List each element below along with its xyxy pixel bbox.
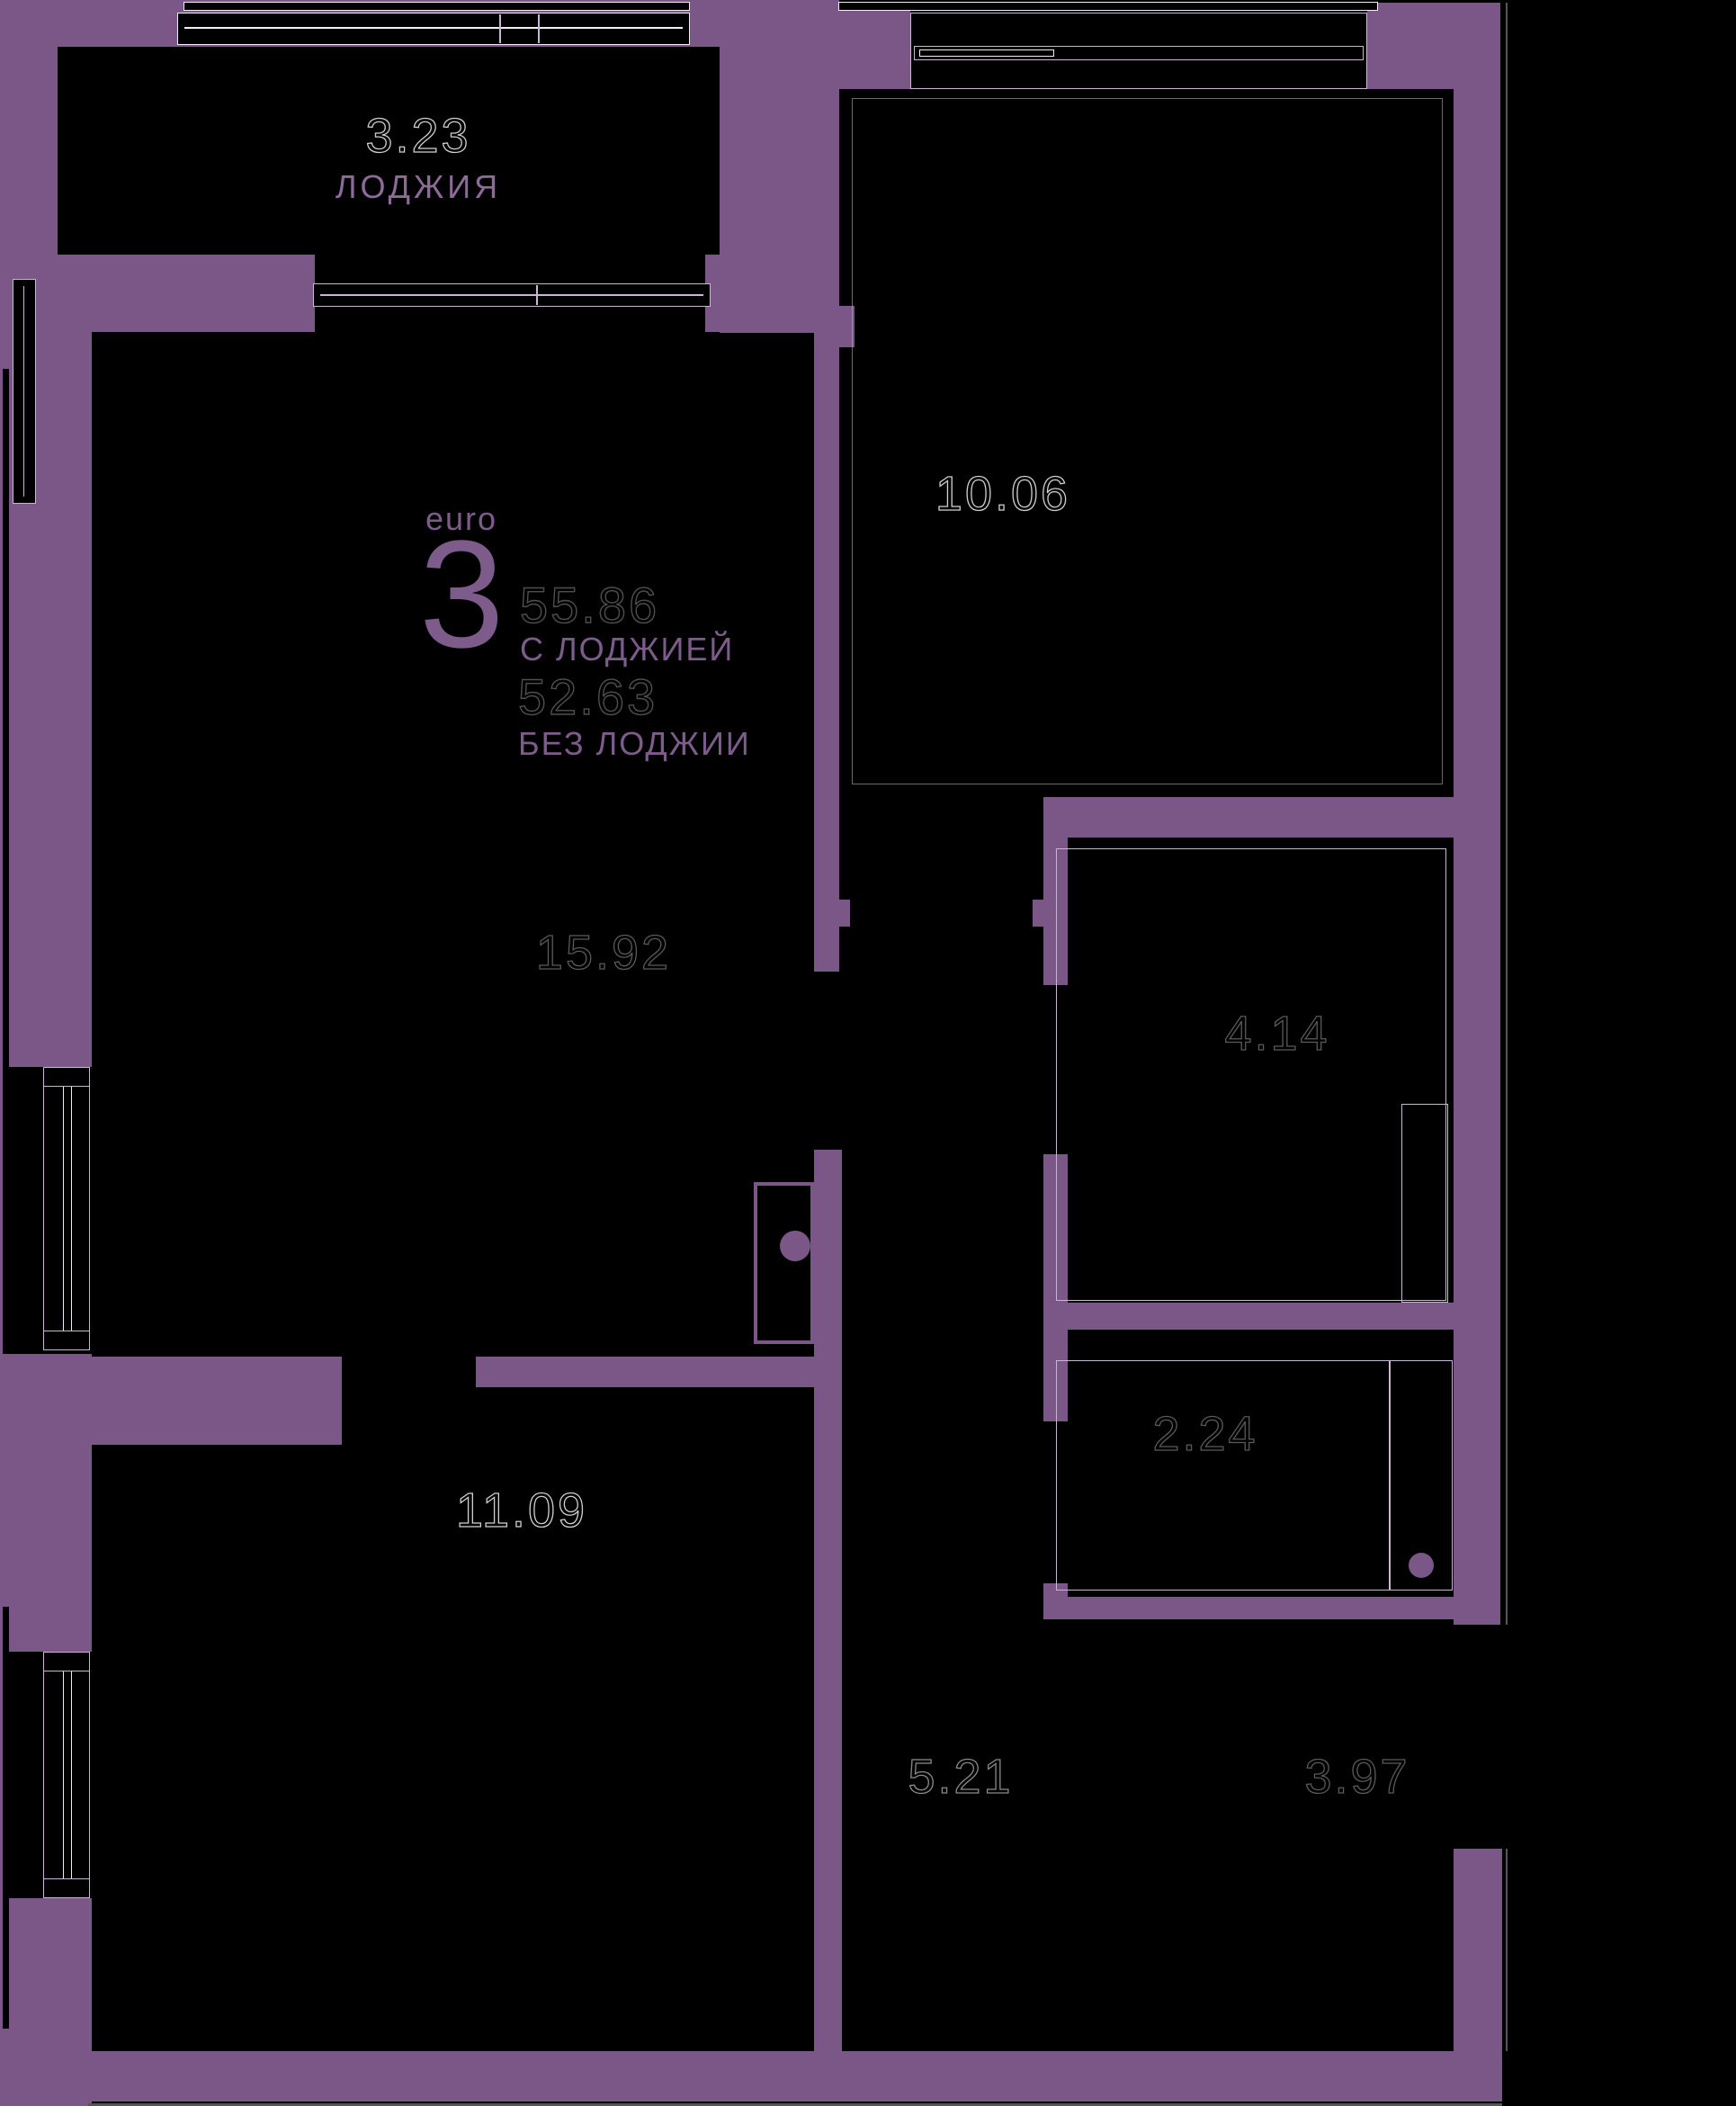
window-living-left-sash [63,1076,72,1345]
loggia-living-window-glassline [320,294,703,296]
room-outline-wc [1056,1360,1390,1591]
room-label-bathroom: 4.14 [1224,1006,1329,1062]
wc-fixture-icon [1409,1553,1434,1578]
loggia-top-window-rail [183,2,690,11]
loggia-side-window [13,279,36,504]
wall-right-upper [1454,3,1500,1625]
window-room2-left-cap-bottom [43,1878,90,1898]
loggia-living-window-divider [536,285,538,305]
shaft-living [754,1182,814,1344]
room-label-living: 15.92 [536,925,671,981]
loggia-top-window [177,13,690,45]
room-label-wc: 2.24 [1152,1406,1257,1462]
room-label-bedroom: 10.06 [935,466,1070,522]
apartment-rooms-count: 3 [419,526,505,664]
window-room2-left-cap-top [43,1652,90,1671]
door-jamb-bathroom [1033,900,1043,927]
room-outline-bathroom [1056,848,1446,1301]
bedroom-top-window-sash [919,49,1054,57]
wall-wc-bottom [1043,1597,1454,1619]
room-label-loggia: 3.23 [365,108,470,164]
wall-living-room2-thin [476,1357,814,1387]
loggia-top-window-divider-a [499,14,501,43]
wall-right-lower [1454,1849,1502,2051]
right-facade-edge-upper [1506,3,1508,1625]
floor-plan: euro 3 55.86 С ЛОДЖИЕЙ 52.63 БЕЗ ЛОДЖИИ … [0,0,1736,2106]
area-without-loggia-label: БЕЗ ЛОДЖИИ [518,725,751,763]
wall-bedroom-bottom [1043,797,1454,838]
wall-left-loggia [0,27,58,255]
duct-bathroom [1401,1104,1448,1303]
bedroom-top-window-rail [838,2,1378,11]
wall-loggia-bottom-left [58,255,315,332]
room-label-entry: 3.97 [1304,1749,1409,1805]
facade-line-upper [3,369,9,1354]
room-label-room2: 11.09 [456,1483,587,1538]
door-jamb-living-opening [839,900,850,927]
area-without-loggia-value: 52.63 [518,668,658,726]
wall-bottom [88,2051,1502,2102]
area-with-loggia-label: С ЛОДЖИЕЙ [520,631,734,668]
wall-living-corridor-upper [814,306,839,972]
wall-bathroom-wc-divider [1043,1303,1454,1330]
wall-living-room2-thick [90,1357,342,1445]
window-living-left-cap-bottom [43,1331,90,1350]
loggia-top-window-glassline [184,27,683,29]
room-outline-bedroom [852,98,1443,784]
loggia-side-window-glassline [23,286,24,497]
window-living-left-cap-top [43,1067,90,1087]
window-room2-left-sash [63,1661,72,1889]
wall-living-corridor-lower [814,1150,842,2051]
facade-line-lower [3,1607,9,2029]
room-label-hall: 5.21 [908,1749,1013,1805]
loggia-top-window-divider-b [538,14,540,43]
area-with-loggia-value: 55.86 [520,576,659,634]
right-facade-edge-lower [1506,1849,1508,2051]
shaft-column-icon [780,1231,810,1261]
room-name-loggia: ЛОДЖИЯ [336,168,501,206]
wall-top-band-bedroom-left [839,3,910,89]
